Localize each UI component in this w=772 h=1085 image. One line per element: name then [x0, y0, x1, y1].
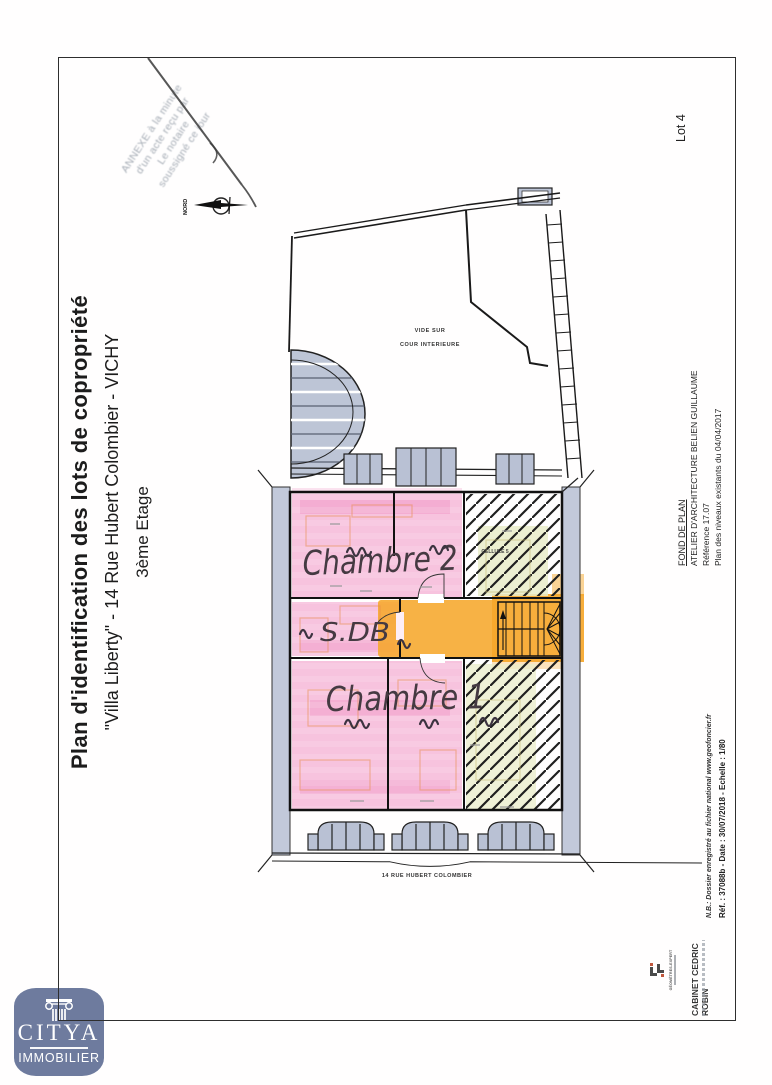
lot-label: Lot 4: [674, 88, 692, 142]
architect-heading: FOND DE PLAN: [676, 370, 688, 566]
handwritten-chambre1: Chambre 1: [325, 677, 486, 720]
floor-label: 3ème Etage: [131, 272, 155, 792]
geometre-logo-caption: GÉOMÈTRES-EXPERT: [669, 948, 673, 992]
courtyard-label-line2: COUR INTERIEURE: [400, 342, 460, 348]
handwritten-sdb: S.DB: [320, 618, 390, 648]
surveyor-ref-line: Réf. : 37088b - Date : 30/07/2018 - Eche…: [718, 712, 731, 918]
street-label: 14 RUE HUBERT COLOMBIER: [382, 873, 472, 879]
column-capital-icon: [42, 999, 76, 1021]
surveyor-nb-note: N.B.: Dossier enregistré au fichier nati…: [706, 712, 717, 918]
architect-studio: ATELIER D'ARCHITECTURE BELIEN GUILLAUME: [688, 370, 700, 566]
surveyor-cabinet-address: [701, 940, 707, 1016]
courtyard-label-line1: VIDE SUR: [415, 328, 446, 334]
scanned-plan-page: ANNEXE à la minute d'un acte reçu par Le…: [0, 0, 772, 1085]
north-arrow-icon: NORD: [183, 197, 248, 215]
handwritten-chambre2: Chambre 2: [302, 539, 458, 584]
citya-logo-tagline: IMMOBILIER: [18, 1051, 100, 1065]
architect-block: FOND DE PLAN ATELIER D'ARCHITECTURE BELI…: [676, 370, 728, 566]
north-label: NORD: [183, 199, 189, 215]
architect-reference: Référence 17.07: [700, 370, 712, 566]
citya-logo: CITYA IMMOBILIER: [14, 988, 104, 1076]
citya-logo-name: CITYA: [18, 1021, 101, 1045]
cellule5-label: CELLULE 5: [481, 549, 508, 555]
page-title: Plan d'identification des lots de coprop…: [66, 272, 94, 792]
geometre-logo-icon: [650, 962, 664, 978]
room-cellule5-hatched: [466, 494, 560, 596]
floor-plan-drawing: VIDE SUR COUR INTERIEURE CELLULE 5 14 RU…: [250, 170, 710, 900]
title-block: Plan d'identification des lots de coprop…: [66, 272, 158, 792]
architect-plan-note: Plan des niveaux existants du 04/04/2017: [712, 370, 724, 566]
page-subtitle: "Villa Liberty" - 14 Rue Hubert Colombie…: [99, 272, 125, 792]
geometre-logo: GÉOMÈTRES-EXPERT: [650, 948, 682, 992]
